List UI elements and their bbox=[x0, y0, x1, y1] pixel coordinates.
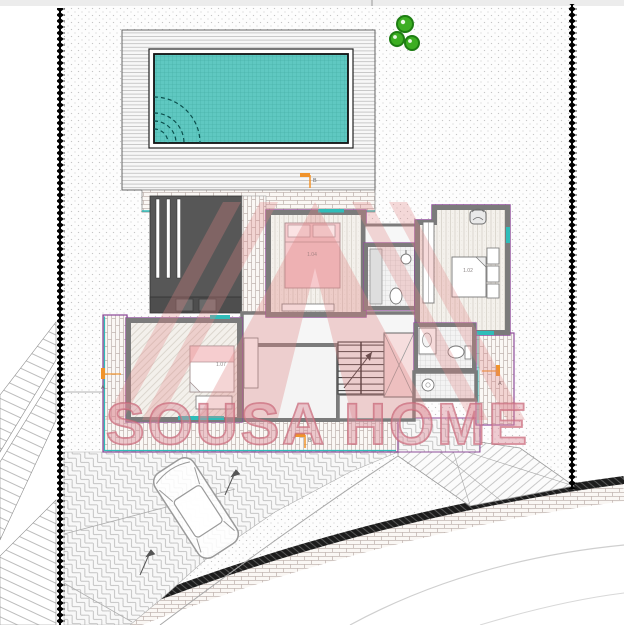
boundary-line-right bbox=[569, 4, 577, 489]
site-plan-canvas: 1.04 1.02 bbox=[0, 0, 624, 625]
swimming-pool bbox=[154, 54, 348, 143]
washer-icon bbox=[422, 379, 434, 391]
shower bbox=[370, 249, 382, 304]
svg-text:A: A bbox=[101, 385, 105, 391]
watermark-text: SOUSA HOME bbox=[106, 392, 530, 457]
room-label: 1.07 bbox=[216, 362, 226, 368]
bed-icon bbox=[452, 257, 486, 297]
window bbox=[506, 227, 510, 243]
armchair-icon bbox=[470, 209, 486, 224]
svg-text:B: B bbox=[313, 178, 317, 184]
top-edge-strip bbox=[0, 0, 624, 6]
boundary-line-left bbox=[57, 8, 65, 625]
window bbox=[476, 331, 494, 335]
window bbox=[318, 209, 344, 213]
room-label: 1.02 bbox=[463, 268, 473, 274]
floor-plan-drawing: 1.04 1.02 bbox=[0, 0, 624, 625]
